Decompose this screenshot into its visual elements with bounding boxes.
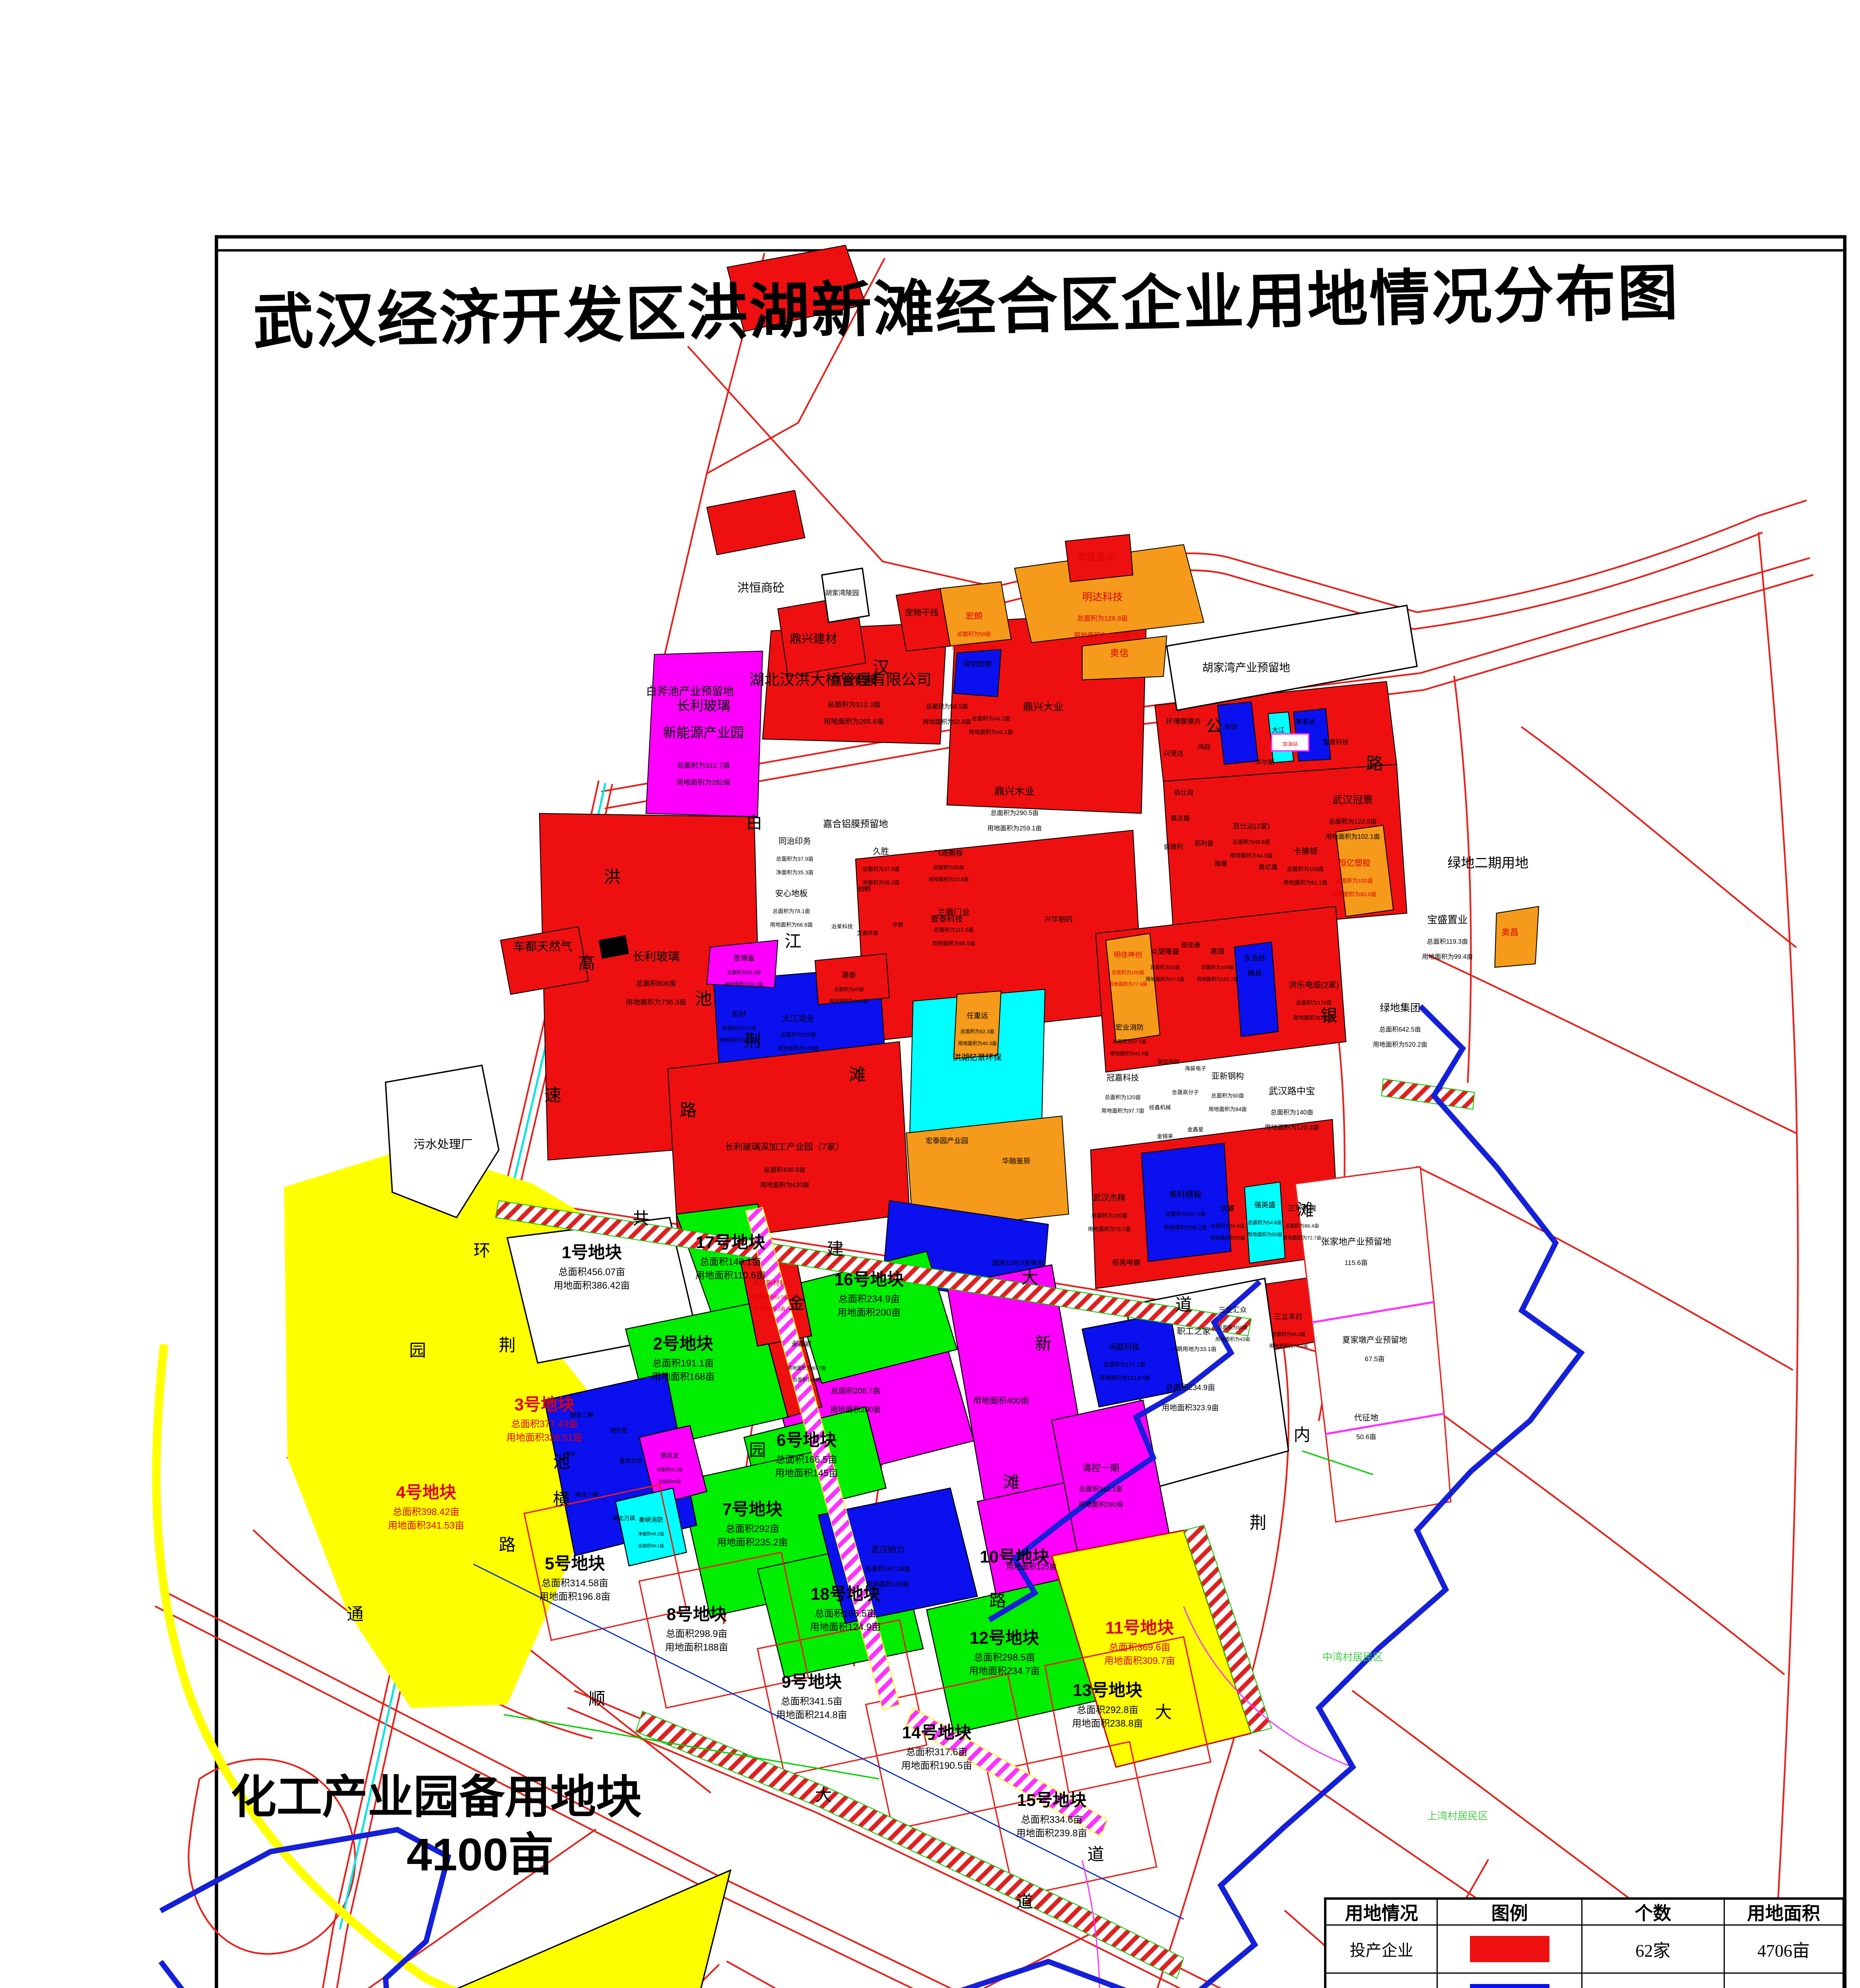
road-name-char: 横 xyxy=(553,1490,570,1509)
map-label: 总面积为53.6亩 xyxy=(722,1025,756,1031)
road-name-char: 环 xyxy=(474,1242,491,1260)
plot-used-area-label: 用地面积386.42亩 xyxy=(554,1280,630,1291)
plot-name-label: 12号地块 xyxy=(970,1629,1039,1648)
road-name-char: 通 xyxy=(347,1605,364,1624)
map-label: 用地面积为74.2亩 xyxy=(1269,1343,1308,1349)
road-name-char: 白 xyxy=(746,814,763,833)
map-label: 武汉柏力 xyxy=(871,1545,905,1554)
legend-row-swatch-cell xyxy=(1437,1974,1581,1988)
map-label: 总面积为171.7亩 xyxy=(1103,1361,1145,1367)
road-name-char: 高 xyxy=(578,954,595,973)
map-label: 大江润业 xyxy=(782,1014,814,1023)
map-label: 用地面积为123.67亩 xyxy=(1099,1375,1150,1381)
map-label: 用地面积为99.4亩 xyxy=(1422,953,1473,961)
map-label: 卡佛顿 xyxy=(1293,847,1317,856)
plot-name-label: 18号地块 xyxy=(811,1585,880,1604)
plot-total-area-label: 总面积341.5亩 xyxy=(781,1696,843,1707)
map-label: 佰仕润 xyxy=(1174,789,1193,796)
map-label: 飞燕鹏程 xyxy=(934,849,963,857)
map-label: 大江 xyxy=(1272,727,1285,734)
map-label: 恒亿塑胶 xyxy=(1338,859,1371,868)
map-label: 总面积为47.5亩 xyxy=(1113,1039,1147,1044)
plot-used-area-label: 用地面积234.7亩 xyxy=(969,1666,1040,1676)
map-label: 总面积为100亩 xyxy=(1111,969,1144,975)
map-label: 海装电子 xyxy=(1184,1066,1206,1072)
map-label: 鼎兴大业 xyxy=(1023,701,1064,712)
map-label: 秦峡消防 xyxy=(639,1517,663,1524)
map-label: 总面积642.5亩 xyxy=(1379,1026,1421,1033)
map-label: 华融鉴辰 xyxy=(1002,1157,1031,1165)
map-label: 用地面积为66.8亩 xyxy=(770,922,813,928)
map-label: 三立汇众 xyxy=(1219,1306,1247,1314)
plot-total-area-label: 总面积334.6亩 xyxy=(1021,1815,1083,1825)
plot-total-area-label: 总面积314.58亩 xyxy=(542,1578,608,1588)
map-stage: 洪恒商砼鼎兴建材胡家湾陵园湖北汉洪大桥管理有限公司白斧池产业预留地胡家湾产业预留… xyxy=(0,0,1860,1988)
map-label: 深圳宏钢 xyxy=(963,660,991,668)
map-label: 总面积为37.9亩 xyxy=(776,856,814,862)
plot-used-area-label: 用地面积309.7亩 xyxy=(1104,1656,1175,1666)
road-name-char: 洪 xyxy=(604,868,621,887)
map-label: 用地面积为282亩 xyxy=(676,779,731,786)
map-label: 用地面积为34.9亩 xyxy=(724,981,763,987)
map-label: 鸿冠 xyxy=(1198,744,1210,751)
map-label: 德利苞 xyxy=(610,1427,627,1434)
plot-used-area-label: 用地面积168亩 xyxy=(652,1371,715,1382)
legend-row-count: 62家 xyxy=(1581,1926,1723,1972)
plot-name-label: 14号地块 xyxy=(902,1724,972,1742)
map-label: 总面积为120亩 xyxy=(1105,1094,1141,1101)
map-label: 用地面积为43亩 xyxy=(1215,1336,1250,1342)
map-label: 联忠科技 xyxy=(1157,1059,1179,1065)
road-name-char: 路 xyxy=(989,1592,1006,1610)
map-label: 用地面积为47.3亩 xyxy=(1146,976,1184,982)
map-label: 智普科技 xyxy=(1323,738,1349,745)
legend-row: 在建企业 24家 1593亩 xyxy=(1326,1972,1843,1988)
map-label: 清控一期 xyxy=(1082,1463,1120,1473)
road-name-char: 滩 xyxy=(849,1066,866,1085)
map-label: 用地面积为80.7亩 xyxy=(787,1365,826,1371)
map-label: 兴华制药 xyxy=(1044,915,1072,923)
map-label: 冠嘉科技 xyxy=(1107,1074,1139,1083)
map-label: 净面积为35.3亩 xyxy=(862,879,899,885)
map-label: 总面积为59.5亩 xyxy=(926,703,968,710)
map-label: 用地面积为265.6亩 xyxy=(824,717,884,725)
plot-total-area-label: 总面积377.49亩 xyxy=(511,1419,578,1430)
map-label: 总面积100亩 xyxy=(793,1377,821,1383)
legend-row-label: 投产企业 xyxy=(1326,1926,1437,1972)
map-label: 南雁 xyxy=(1214,860,1227,868)
plot-total-area-label: 总面积369.6亩 xyxy=(1109,1642,1171,1653)
map-label: 加油站 xyxy=(1283,741,1298,747)
legend-swatch-blue xyxy=(1470,1984,1549,1988)
legend-row: 投产企业 62家 4706亩 xyxy=(1326,1924,1843,1972)
map-label: 合晟高分子 xyxy=(1172,1089,1199,1095)
map-label: 用地面积为77.9亩 xyxy=(1109,981,1147,987)
road-name-char: 荆 xyxy=(744,1032,761,1051)
plot-used-area-label: 用地面积200亩 xyxy=(838,1307,901,1318)
plot-used-area-label: 用地面积110.6亩 xyxy=(695,1270,766,1281)
map-label: 用地面积为50亩 xyxy=(1210,1235,1245,1241)
road-name-char: 共 xyxy=(633,1209,650,1228)
plot-name-label: 17号地块 xyxy=(696,1233,765,1252)
map-label: 用地面积200亩 xyxy=(830,1405,881,1414)
chemical-reserve-label-line2: 4100亩 xyxy=(407,1829,554,1880)
map-label: 总面积为95.2亩 xyxy=(1272,1331,1306,1337)
plot-total-area-label: 总面积292亩 xyxy=(726,1524,779,1534)
map-label: 总面积498.8亩 xyxy=(764,1166,806,1173)
plot-used-area-label: 用地面积188亩 xyxy=(665,1642,728,1653)
map-label: 丽泽一期 xyxy=(575,1491,598,1498)
legend-row-label: 在建企业 xyxy=(1326,1974,1437,1988)
map-label: 治莱科技 xyxy=(831,924,853,930)
road-name-char: 路 xyxy=(680,1101,697,1120)
road-name-char: 园 xyxy=(749,1441,766,1460)
plot-name-label: 10号地块 xyxy=(980,1548,1049,1567)
legend-table: 用地情况 图例 个数 用地面积 投产企业 62家 4706亩 在建企业 24家 … xyxy=(1324,1897,1845,1988)
map-label: 奥亿鑫 xyxy=(1258,863,1278,871)
map-label: 奥昌 xyxy=(1501,928,1518,937)
map-label: 用地面积为23.8亩 xyxy=(928,876,969,882)
plot-used-area-label: 用地面积341.53亩 xyxy=(388,1520,464,1531)
map-label: 总面积为54.6亩 xyxy=(1211,1223,1245,1229)
map-label: 用地面积为102.7亩 xyxy=(1197,976,1239,982)
map-label: 总面积为140亩 xyxy=(1270,1109,1313,1116)
map-label: 用地面积为420亩 xyxy=(760,1182,809,1189)
plot-name-label: 2号地块 xyxy=(653,1335,714,1353)
plot-total-area-label: 总面积298.9亩 xyxy=(666,1629,728,1639)
plot-total-area-label: 总面积398.42亩 xyxy=(393,1507,460,1518)
map-label: 白斧池产业预留地 xyxy=(646,685,734,697)
map-label: 宏朗 xyxy=(965,612,982,621)
map-label: 创明 xyxy=(858,885,870,893)
map-label: 用地面积为46.8亩 xyxy=(829,998,868,1004)
map-label: 夏家墩产业预留地 xyxy=(1342,1336,1407,1345)
map-label: 总面积为100亩 xyxy=(1336,878,1373,884)
map-label: 代征地 xyxy=(1354,1413,1378,1423)
map-label: 总面积为78.1亩 xyxy=(773,908,810,914)
map-label: 宏业消防 xyxy=(1115,1023,1144,1031)
map-label: 净面积为35.3亩 xyxy=(776,869,814,876)
map-label: 环博摩擦片 xyxy=(1166,717,1201,725)
map-label: 用地面积为259.1亩 xyxy=(987,825,1042,832)
map-label: 张家地产业预留地 xyxy=(1321,1237,1391,1246)
map-label: 三立车灯 xyxy=(1274,1312,1303,1320)
plot-used-area-label: 用地面积196.8亩 xyxy=(540,1591,611,1602)
plot-total-area-label: 总面积317.6亩 xyxy=(906,1747,968,1758)
map-label: 长利玻璃 xyxy=(633,950,680,963)
map-label: 用地面积为82.5亩 xyxy=(750,1294,789,1300)
map-label: 宏泰园产业园 xyxy=(926,1137,968,1145)
road-name-char: 路 xyxy=(1366,755,1383,773)
plot-name-label: 1号地块 xyxy=(562,1243,622,1262)
map-label: 一期用地为33.1亩 xyxy=(1171,1345,1217,1353)
map-label: 用地面积为736.3亩 xyxy=(626,998,686,1006)
map-label: 总面积为312.7亩 xyxy=(677,761,730,769)
map-label: 拓材 xyxy=(732,1010,746,1018)
map-label: 115.6亩 xyxy=(1345,1259,1368,1266)
map-label: 东浩目 xyxy=(1244,954,1266,962)
map-label: 总面积为170亩 xyxy=(1296,999,1332,1006)
map-label: 恒佳通 xyxy=(1181,942,1200,949)
road-name-char: 大 xyxy=(1021,1269,1039,1287)
road-name-char: 池 xyxy=(553,1453,570,1472)
map-label: 用地面积为79.2亩 xyxy=(1088,1226,1131,1232)
map-label: 胡家湾陵园 xyxy=(825,589,859,597)
map-label: 经鑫机械 xyxy=(1149,1104,1171,1110)
plot-total-area-label: 总面积140.1亩 xyxy=(700,1256,761,1267)
map-label: 任重远 xyxy=(967,1011,988,1019)
legend-row-swatch-cell xyxy=(1437,1926,1581,1972)
map-label: 总面积为90亩 xyxy=(1211,1092,1244,1099)
map-label: 用地面积为102.1亩 xyxy=(1325,833,1380,841)
map-label: 总面积为48.8亩 xyxy=(1233,839,1270,845)
map-label: 总面积为107.2亩 xyxy=(1165,1211,1206,1217)
plot-used-area-label: 用地面积214.8亩 xyxy=(776,1710,847,1720)
map-label: 武汉杰精 xyxy=(1093,1194,1126,1203)
map-label: 用地面积为100亩 xyxy=(777,1045,819,1051)
map-label: 用地面积为120.3亩 xyxy=(1264,1124,1319,1131)
map-label: 用地面积为52.8亩 xyxy=(923,718,971,725)
road-name-char: 园 xyxy=(409,1342,426,1360)
map-label: 用地面积为520.2亩 xyxy=(1373,1041,1427,1048)
road-name-char: 滩 xyxy=(1003,1474,1020,1492)
map-label: 亚新钢构 xyxy=(1212,1072,1244,1081)
map-label: 胡家湾产业预留地 xyxy=(1202,662,1290,674)
legend-swatch-red xyxy=(1470,1936,1549,1962)
map-label: 安心地板 xyxy=(775,889,808,898)
road-name-char: 公 xyxy=(1206,718,1223,736)
plot-used-area-label: 用地面积124.9亩 xyxy=(810,1622,881,1633)
plot-used-area-label: 用地面积238.8亩 xyxy=(1072,1718,1143,1729)
map-label: 兴茏达 xyxy=(1163,750,1184,757)
map-label: 久胜 xyxy=(873,847,889,856)
map-label: 总面积为88.4亩 xyxy=(1285,1223,1319,1229)
map-label: 奥信 xyxy=(1110,648,1129,658)
map-label: 洪乐电缆(2家) xyxy=(1289,980,1339,990)
plot-name-label: 3号地块 xyxy=(515,1396,575,1414)
road-name-char: 江 xyxy=(784,932,802,951)
plot-total-area-label: 总面积166.5亩 xyxy=(776,1454,837,1465)
map-label: 同治印务 xyxy=(779,837,811,846)
map-label: 绿地二期用地 xyxy=(1447,856,1528,871)
map-label: 总面积为122.6亩 xyxy=(1329,818,1377,825)
map-label: 用地面积400亩 xyxy=(973,1396,1029,1406)
map-label: 长利玻璃深加工产业园（7家） xyxy=(725,1142,844,1152)
plot-total-area-label: 总面积298.5亩 xyxy=(974,1652,1035,1663)
map-label: 用地面积为91.1亩 xyxy=(1283,879,1327,885)
map-label: 明佳神创 xyxy=(1114,951,1142,959)
plot-total-area-label: 总面积456.07亩 xyxy=(558,1267,625,1277)
map-label: 永鑫岩 xyxy=(791,1340,812,1347)
map-label: 总面积为290.5亩 xyxy=(990,810,1039,817)
map-label: 华尔斯 xyxy=(1255,759,1274,766)
map-label: 用地面积为44.5亩 xyxy=(1230,852,1273,858)
map-label: 用地面积为96.5亩 xyxy=(932,940,975,947)
map-label: 用地面积为50亩 xyxy=(1247,1231,1282,1237)
road-name-char: 大 xyxy=(815,1786,832,1805)
road-name-char: 池 xyxy=(695,990,712,1008)
map-label: 金鑫星 xyxy=(1187,1126,1204,1132)
map-label: 强英盛 xyxy=(1254,1201,1276,1209)
legend-header-row: 用地情况 图例 个数 用地面积 xyxy=(1326,1900,1843,1924)
road-name-char: 银 xyxy=(1320,1007,1338,1025)
map-label: 宝盛置业 xyxy=(1427,914,1468,926)
map-label: 用地面积为98.2亩 xyxy=(1164,1224,1207,1231)
map-label: 总面积为50亩 xyxy=(1218,1324,1248,1330)
map-label: 用地面积为53.7亩 xyxy=(952,644,996,650)
map-label: 中朋 xyxy=(893,922,903,928)
map-label: 长利玻璃 xyxy=(676,698,730,713)
map-label: 创信 xyxy=(1225,723,1237,730)
map-label: 总面积为100亩 xyxy=(1287,866,1324,872)
map-label: 总面积69亩 xyxy=(658,1479,681,1484)
map-label: 新能源产业园 xyxy=(663,725,744,740)
map-label: 湖北万砜 xyxy=(612,1515,635,1522)
map-label: 总面积为128.9亩 xyxy=(1077,615,1128,622)
map-label: 嘉合铝膜预留地 xyxy=(823,819,888,829)
map-label: 用地面积为97.7亩 xyxy=(1101,1108,1144,1114)
road-name-char: 建 xyxy=(827,1240,844,1259)
map-label: 总面积为30亩 xyxy=(933,864,964,870)
map-label: 用地面积为40.3亩 xyxy=(958,1040,997,1046)
plot-total-area-label: 总面积165.5亩 xyxy=(815,1608,876,1619)
map-label: 金锦来 xyxy=(1157,1133,1173,1139)
road-name-char: 金 xyxy=(788,1294,805,1313)
yellow-triangle-plot xyxy=(426,1870,730,1988)
map-label: 模具 xyxy=(1248,969,1262,977)
plot-name-label: 13号地块 xyxy=(1073,1681,1142,1700)
plot-used-area-label: 用地面积145亩 xyxy=(775,1468,838,1479)
plot-name-label: 6号地块 xyxy=(777,1431,837,1450)
map-label: 净面积56.3亩 xyxy=(656,1467,683,1472)
map-label: 鼎兴木业 xyxy=(994,786,1035,797)
map-label: 总面积为37.9亩 xyxy=(862,866,899,872)
map-label: 总面积为115.5亩 xyxy=(934,927,974,933)
map-label: 洪湖忆景环保 xyxy=(953,1053,1002,1062)
plot-total-area-label: 总面积292.8亩 xyxy=(1077,1705,1138,1715)
map-label: 艾弗环保 xyxy=(856,930,878,936)
map-label: 鑫达盛 xyxy=(1171,814,1190,822)
map-label: 污水处理厂 xyxy=(414,1138,473,1151)
map-label: 赛凯龙 xyxy=(660,1452,679,1459)
map-label: 思博盈 xyxy=(733,954,755,962)
map-label: 佰亮电镀 xyxy=(1112,1258,1141,1266)
plot-used-area-label: 用地面积235.2亩 xyxy=(717,1537,788,1548)
plot-total-area-label: 总面积191.1亩 xyxy=(652,1358,714,1369)
plot-name-label: 7号地块 xyxy=(722,1501,783,1519)
map-label: 总面积为50亩 xyxy=(1150,964,1180,970)
map-label: 壹泰科技 xyxy=(931,914,963,924)
map-label: 总面积为50亩 xyxy=(834,986,864,992)
map-label: 美麦迪 xyxy=(1296,718,1315,725)
map-label: 用地面积为40.1亩 xyxy=(969,729,1013,735)
map-label: 宏盛基业 xyxy=(1077,551,1114,562)
map-label: 优睿 xyxy=(1221,1204,1235,1212)
map-label: 总面积为54.6亩 xyxy=(1248,1219,1282,1225)
legend-header-count: 个数 xyxy=(1581,1900,1723,1924)
map-label: 总面积806亩 xyxy=(636,980,676,988)
road-name-char: 滩 xyxy=(1297,1201,1314,1220)
plot-used-area-label: 用地面积328.51亩 xyxy=(506,1433,582,1443)
legend-header-status: 用地情况 xyxy=(1326,1900,1437,1924)
map-label: 上湾村居民区 xyxy=(1427,1811,1488,1822)
map-label: 总面积108.2亩 xyxy=(753,1306,785,1312)
road-name-char: 新 xyxy=(1035,1335,1052,1353)
map-label: 嘉合铝模 xyxy=(830,675,878,688)
road-name-char: 速 xyxy=(544,1086,561,1105)
map-label: 盛德利 xyxy=(1164,843,1183,850)
map-label: 总面积119.3亩 xyxy=(1427,938,1468,945)
map-label: 源泰 xyxy=(842,971,856,979)
plot-used-area-label: 用地面积239.8亩 xyxy=(1016,1828,1087,1839)
map-label: 拓利普 xyxy=(1194,840,1213,847)
map-label: 中湾村居民区 xyxy=(1322,1652,1383,1663)
map-label: 用地面积为120.2亩 xyxy=(1074,632,1132,639)
road-name-char: 顺 xyxy=(588,1690,606,1708)
plot-name-label: 5号地块 xyxy=(545,1555,605,1573)
legend-header-area: 用地面积 xyxy=(1724,1900,1843,1924)
map-label: 武汉路中宝 xyxy=(1269,1086,1315,1096)
map-label: 总面积为36.6亩 xyxy=(727,969,761,975)
map-label: 用地面积323.9亩 xyxy=(1162,1404,1219,1412)
plot-name-label: 8号地块 xyxy=(667,1605,727,1624)
plot-name-label: 9号地块 xyxy=(782,1673,842,1691)
plot-name-label: 16号地块 xyxy=(834,1270,904,1289)
plot-name-label: 15号地块 xyxy=(1017,1791,1087,1810)
map-label: 百仕达(2家) xyxy=(1233,822,1270,830)
map-label: 美科精毅 xyxy=(1169,1190,1202,1199)
road-name-char: 道 xyxy=(1087,1845,1105,1864)
map-label: 众望隆盛 xyxy=(1151,947,1179,955)
road-name-char: 内 xyxy=(1293,1426,1311,1445)
map-label: 67.5亩 xyxy=(1365,1355,1384,1363)
map-label: 总面积为108亩 xyxy=(1201,964,1234,970)
map-label: 惠恒 xyxy=(1210,947,1225,955)
road-name-char: 大 xyxy=(1155,1703,1172,1722)
map-label: 总面积208.7亩 xyxy=(831,1386,880,1395)
plot-total-area-label: 总面积234.9亩 xyxy=(839,1294,900,1305)
map-label: 总面积为312.3亩 xyxy=(827,701,881,709)
map-label: 用地面积为72.7亩 xyxy=(1283,1235,1322,1241)
map-label: 净面积46.2亩 xyxy=(638,1531,664,1537)
map-label: 总面积56.1亩 xyxy=(638,1543,664,1548)
map-label: 总面积为59亩 xyxy=(957,631,991,637)
map-label: 用地面积为84亩 xyxy=(1208,1106,1247,1112)
legend-row-count: 24家 xyxy=(1581,1974,1723,1988)
map-label: 宠物干线 xyxy=(905,608,938,617)
map-label: 总面积为110亩 xyxy=(780,1031,816,1038)
map-label: 绿地集团 xyxy=(1380,1002,1420,1013)
road-name-char: 道 xyxy=(1175,1296,1192,1314)
map-label: 用地面积为42.4亩 xyxy=(1110,1050,1149,1056)
legend-row-area: 4706亩 xyxy=(1724,1926,1843,1972)
map-label: 国网110KV变电站 xyxy=(992,1259,1043,1266)
map-label: 洪恒商砼 xyxy=(737,582,784,595)
map-label: 车都天然气 xyxy=(513,940,573,953)
legend-row-area: 1593亩 xyxy=(1724,1974,1843,1988)
map-label: 总面积为100亩 xyxy=(1091,1212,1127,1219)
map-label: 总面积234.9亩 xyxy=(1166,1383,1215,1392)
chemical-reserve-label-line1: 化工产业园备用地块 xyxy=(231,1772,642,1823)
map-label: 总面积342.1亩 xyxy=(1079,1485,1123,1493)
road-name-char: 汉 xyxy=(872,658,889,677)
map-label: 职工之家 xyxy=(1177,1327,1211,1336)
map-label: 鼎兴建材 xyxy=(790,632,837,645)
map-label: 用地面积290亩 xyxy=(1078,1501,1123,1508)
map-label: 闲庭科技 xyxy=(1109,1343,1140,1351)
map-label: 用地面积为80.0亩 xyxy=(1332,891,1377,897)
map-label: 总面积167.18亩 xyxy=(865,1565,911,1573)
